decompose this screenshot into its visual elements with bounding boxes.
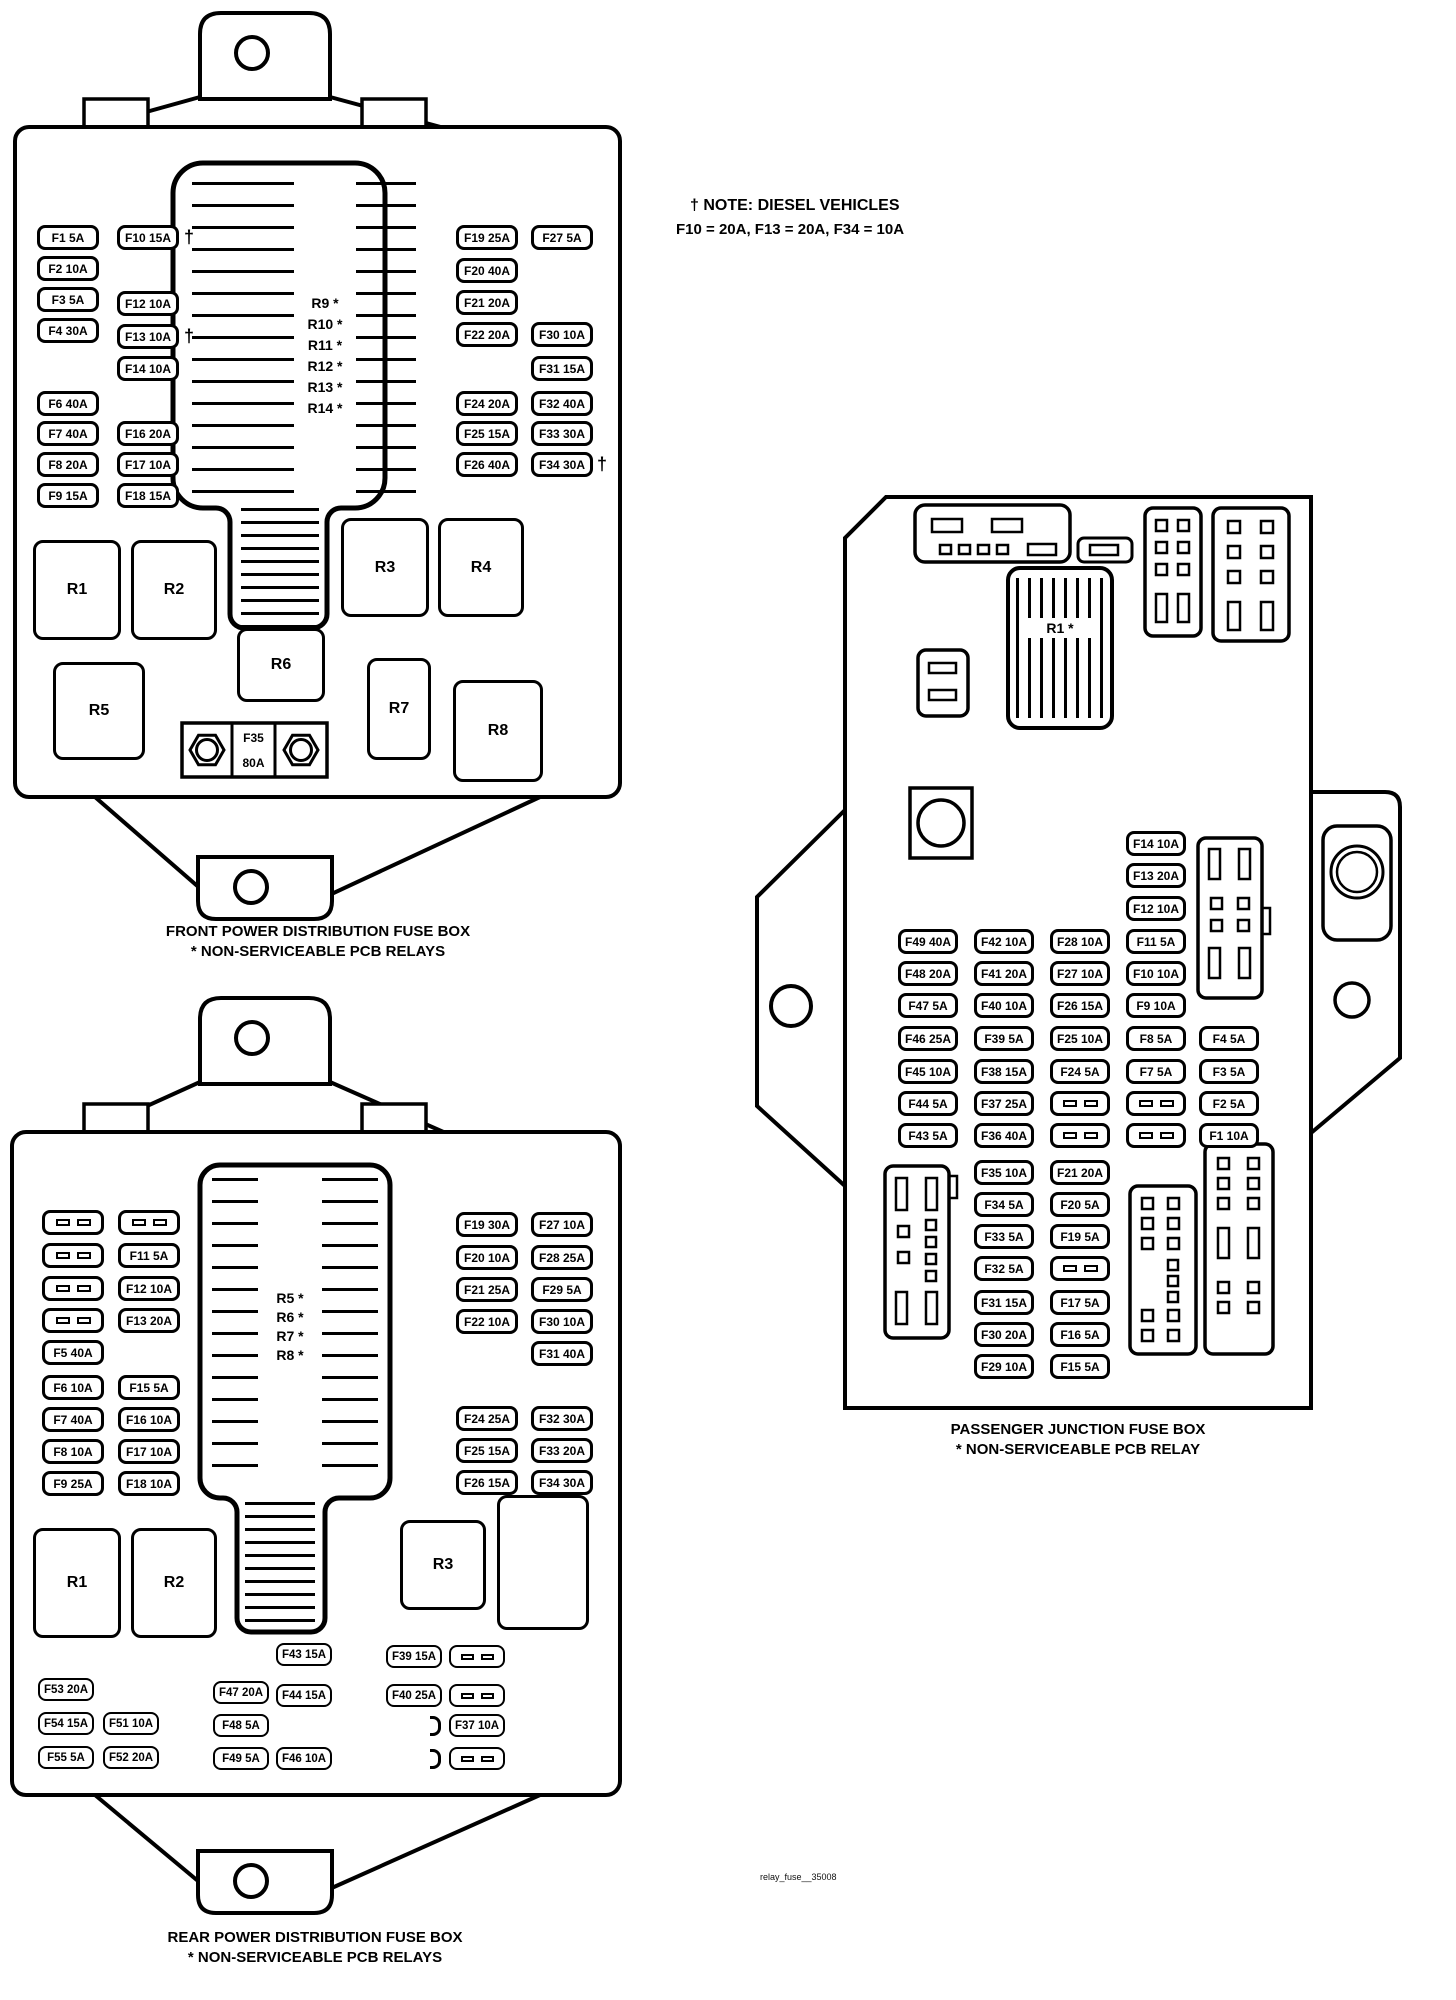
fuse-rear-f7: F7 40A <box>42 1407 104 1432</box>
relay-front-r4: R4 <box>438 518 524 617</box>
pcb-relay-label-r1: R1 * <box>1022 618 1098 638</box>
fuse-front-f31: F31 15A <box>531 356 593 381</box>
fuse-pass-f28: F28 10A <box>1050 929 1110 954</box>
fuse-pass-f8: F8 5A <box>1126 1026 1186 1051</box>
fuse-pass-f34: F34 5A <box>974 1192 1034 1217</box>
fuse-pass-f15: F15 5A <box>1050 1354 1110 1379</box>
pcb-ladder-lines <box>322 1178 378 1480</box>
fuse-pass-f26: F26 15A <box>1050 993 1110 1018</box>
fuse-rear-f20: F20 10A <box>456 1245 518 1270</box>
rear-caption-line1: REAR POWER DISTRIBUTION FUSE BOX <box>55 1928 575 1948</box>
passenger-caption-line1: PASSENGER JUNCTION FUSE BOX <box>818 1420 1338 1440</box>
fuse-rear-f8: F8 10A <box>42 1439 104 1464</box>
relay-front-r2: R2 <box>131 540 217 640</box>
relay-front-r7: R7 <box>367 658 431 760</box>
fuse-pass-f3: F3 5A <box>1199 1059 1259 1084</box>
fuse-front-f30: F30 10A <box>531 322 593 347</box>
drawing-reference-code: relay_fuse__35008 <box>760 1872 837 1882</box>
fuse-front-f35: F35 80A <box>233 726 274 776</box>
pcb-relay-label-r11: R11 * <box>296 335 354 355</box>
passenger-right-bracket <box>1311 792 1400 1133</box>
fuse-pass-f43: F43 5A <box>898 1123 958 1148</box>
fuse-front-f32: F32 40A <box>531 391 593 416</box>
relay-rear-r1: R1 <box>33 1528 121 1638</box>
relay-front-r3: R3 <box>341 518 429 617</box>
fuse-rear-f6: F6 10A <box>42 1375 104 1400</box>
connector-icon <box>1126 1123 1186 1148</box>
fuse-pass-f12: F12 10A <box>1126 896 1186 921</box>
pcb-ladder-lines <box>241 508 319 626</box>
fuse-rear-f28: F28 25A <box>531 1245 593 1270</box>
rear-caption-line2: * NON-SERVICEABLE PCB RELAYS <box>55 1948 575 1968</box>
pcb-relay-label-r13: R13 * <box>296 377 354 397</box>
fuse-front-f20: F20 40A <box>456 258 518 283</box>
fuse-front-f8: F8 20A <box>37 452 99 477</box>
fuse-pass-f1: F1 10A <box>1199 1123 1259 1148</box>
fuse-front-f3: F3 5A <box>37 287 99 312</box>
fuse-pass-f39: F39 5A <box>974 1026 1034 1051</box>
pcb-ladder-lines <box>245 1502 315 1628</box>
fuse-rear-f12: F12 10A <box>118 1276 180 1301</box>
fuse-rear-f21: F21 25A <box>456 1277 518 1302</box>
fuse-pass-f10: F10 10A <box>1126 961 1186 986</box>
connector-icon <box>449 1684 505 1707</box>
fuse-pass-f44: F44 5A <box>898 1091 958 1116</box>
fuse-rear-f18: F18 10A <box>118 1471 180 1496</box>
fuse-front-f18: F18 15A <box>117 483 179 508</box>
fuse-rear-f34: F34 30A <box>531 1470 593 1495</box>
fuse-front-f34: F34 30A <box>531 452 593 477</box>
fuse-pass-f11: F11 5A <box>1126 929 1186 954</box>
fuse-pass-f13: F13 20A <box>1126 863 1186 888</box>
fuse-rear-f17: F17 10A <box>118 1439 180 1464</box>
fuse-front-f35-id: F35 <box>233 726 274 751</box>
connector-icon <box>1126 1091 1186 1116</box>
pcb-relay-label-r6: R6 * <box>262 1307 318 1327</box>
connector-icon <box>449 1747 505 1770</box>
fuse-rear-f33: F33 20A <box>531 1438 593 1463</box>
fuse-pass-f20: F20 5A <box>1050 1192 1110 1217</box>
connector-icon <box>118 1210 180 1235</box>
fuse-rear-f40: F40 25A <box>386 1684 442 1707</box>
fuse-rear-f44: F44 15A <box>276 1684 332 1707</box>
relay-front-r6: R6 <box>237 628 325 702</box>
fuse-rear-f9: F9 25A <box>42 1471 104 1496</box>
fuse-front-f35-amp: 80A <box>233 751 274 776</box>
fuse-rear-f43: F43 15A <box>276 1643 332 1666</box>
relay-front-r1: R1 <box>33 540 121 640</box>
passenger-box-caption: PASSENGER JUNCTION FUSE BOX * NON-SERVIC… <box>818 1420 1338 1460</box>
fuse-rear-f30: F30 10A <box>531 1309 593 1334</box>
fuse-front-f17: F17 10A <box>117 452 179 477</box>
pcb-ladder-lines <box>212 1178 258 1480</box>
fuse-rear-f55: F55 5A <box>38 1746 94 1769</box>
fuse-rear-f15: F15 5A <box>118 1375 180 1400</box>
relay-rear-r3: R3 <box>400 1520 486 1610</box>
connector-icon <box>42 1276 104 1301</box>
pcb-relay-label-r9: R9 * <box>296 293 354 313</box>
fuse-front-f12: F12 10A <box>117 291 179 316</box>
fuse-rear-f49: F49 5A <box>213 1747 269 1770</box>
fuse-pass-f37: F37 25A <box>974 1091 1034 1116</box>
fuse-front-f24: F24 20A <box>456 391 518 416</box>
fuse-front-f16: F16 20A <box>117 421 179 446</box>
connector-icon <box>449 1645 505 1668</box>
rear-box-caption: REAR POWER DISTRIBUTION FUSE BOX * NON-S… <box>55 1928 575 1968</box>
pcb-relay-label-r7: R7 * <box>262 1326 318 1346</box>
dagger-front-f34: † <box>597 454 607 475</box>
fuse-pass-f27: F27 10A <box>1050 961 1110 986</box>
front-box-caption: FRONT POWER DISTRIBUTION FUSE BOX * NON-… <box>58 922 578 962</box>
fuse-front-f10: F10 15A <box>117 225 179 250</box>
fuse-pass-f16: F16 5A <box>1050 1322 1110 1347</box>
fuse-pass-f49: F49 40A <box>898 929 958 954</box>
diesel-note-title: † NOTE: DIESEL VEHICLES <box>690 197 900 215</box>
fuse-front-f27: F27 5A <box>531 225 593 250</box>
connector-icon <box>42 1308 104 1333</box>
fuse-rear-f51: F51 10A <box>103 1712 159 1735</box>
fuse-pass-f24: F24 5A <box>1050 1059 1110 1084</box>
fuse-rear-f5: F5 40A <box>42 1340 104 1365</box>
connector-icon <box>42 1210 104 1235</box>
fuse-front-f14: F14 10A <box>117 356 179 381</box>
fuse-box-diagram-page: † NOTE: DIESEL VEHICLES F10 = 20A, F13 =… <box>0 0 1456 2000</box>
fuse-rear-f19: F19 30A <box>456 1212 518 1237</box>
fuse-pass-f14: F14 10A <box>1126 831 1186 856</box>
fuse-pass-f33: F33 5A <box>974 1224 1034 1249</box>
fuse-front-f2: F2 10A <box>37 256 99 281</box>
fuse-rear-f26: F26 15A <box>456 1470 518 1495</box>
fuse-rear-f47: F47 20A <box>213 1681 269 1704</box>
pcb-relay-label-r12: R12 * <box>296 356 354 376</box>
fuse-front-f21: F21 20A <box>456 290 518 315</box>
relay-front-r8: R8 <box>453 680 543 782</box>
fuse-front-f19: F19 25A <box>456 225 518 250</box>
fuse-rear-f54: F54 15A <box>38 1712 94 1735</box>
front-box-top-bracket <box>84 13 448 129</box>
fuse-pass-f42: F42 10A <box>974 929 1034 954</box>
fuse-front-f22: F22 20A <box>456 322 518 347</box>
fuse-rear-f52: F52 20A <box>103 1746 159 1769</box>
fuse-rear-f32: F32 30A <box>531 1406 593 1431</box>
fuse-front-f13: F13 10A <box>117 324 179 349</box>
front-caption-line2: * NON-SERVICEABLE PCB RELAYS <box>58 942 578 962</box>
rear-box-top-bracket <box>84 998 448 1134</box>
pcb-ladder-lines <box>356 182 416 494</box>
fuse-pass-f9: F9 10A <box>1126 993 1186 1018</box>
fuse-rear-f37: F37 10A <box>449 1714 505 1737</box>
fuse-rear-f25: F25 15A <box>456 1438 518 1463</box>
diesel-note-values: F10 = 20A, F13 = 20A, F34 = 10A <box>676 221 904 238</box>
relay-rear-r2: R2 <box>131 1528 217 1638</box>
fuse-front-f9: F9 15A <box>37 483 99 508</box>
pcb-relay-label-r8: R8 * <box>262 1345 318 1365</box>
fuse-rear-f29: F29 5A <box>531 1277 593 1302</box>
pcb-ladder-lines <box>1016 578 1104 718</box>
fuse-rear-f11: F11 5A <box>118 1243 180 1268</box>
fuse-rear-f46: F46 10A <box>276 1747 332 1770</box>
relay-rear-blank <box>497 1495 589 1630</box>
fuse-pass-f45: F45 10A <box>898 1059 958 1084</box>
fuse-front-f33: F33 30A <box>531 421 593 446</box>
fuse-pass-f48: F48 20A <box>898 961 958 986</box>
relay-front-r5: R5 <box>53 662 145 760</box>
passenger-caption-line2: * NON-SERVICEABLE PCB RELAY <box>818 1440 1338 1460</box>
fuse-front-f1: F1 5A <box>37 225 99 250</box>
fuse-pass-f29: F29 10A <box>974 1354 1034 1379</box>
connector-icon <box>1050 1091 1110 1116</box>
fuse-pass-f7: F7 5A <box>1126 1059 1186 1084</box>
fuse-pass-f36: F36 40A <box>974 1123 1034 1148</box>
pcb-relay-label-r14: R14 * <box>296 398 354 418</box>
fuse-front-f6: F6 40A <box>37 391 99 416</box>
fuse-pass-f4: F4 5A <box>1199 1026 1259 1051</box>
connector-icon <box>1050 1256 1110 1281</box>
pcb-relay-label-r5: R5 * <box>262 1288 318 1308</box>
connector-icon <box>1050 1123 1110 1148</box>
fuse-rear-f22: F22 10A <box>456 1309 518 1334</box>
fuse-pass-f38: F38 15A <box>974 1059 1034 1084</box>
fuse-rear-f24: F24 25A <box>456 1406 518 1431</box>
fuse-front-f7: F7 40A <box>37 421 99 446</box>
fuse-pass-f35: F35 10A <box>974 1160 1034 1185</box>
fuse-pass-f30: F30 20A <box>974 1322 1034 1347</box>
fuse-rear-f53: F53 20A <box>38 1678 94 1701</box>
fuse-pass-f32: F32 5A <box>974 1256 1034 1281</box>
fuse-pass-f21: F21 20A <box>1050 1160 1110 1185</box>
fuse-rear-f48: F48 5A <box>213 1714 269 1737</box>
pcb-relay-label-r10: R10 * <box>296 314 354 334</box>
fuse-pass-f47: F47 5A <box>898 993 958 1018</box>
fuse-pass-f17: F17 5A <box>1050 1290 1110 1315</box>
fuse-rear-f39: F39 15A <box>386 1645 442 1668</box>
fuse-pass-f40: F40 10A <box>974 993 1034 1018</box>
passenger-left-bracket <box>757 810 845 1186</box>
fuse-pass-f2: F2 5A <box>1199 1091 1259 1116</box>
front-box-bottom-bracket <box>95 797 540 919</box>
fuse-rear-f13: F13 20A <box>118 1308 180 1333</box>
fuse-front-f4: F4 30A <box>37 318 99 343</box>
fuse-rear-f27: F27 10A <box>531 1212 593 1237</box>
fuse-front-f26: F26 40A <box>456 452 518 477</box>
fuse-pass-f25: F25 10A <box>1050 1026 1110 1051</box>
fuse-pass-f31: F31 15A <box>974 1290 1034 1315</box>
connector-icon <box>42 1243 104 1268</box>
pcb-ladder-lines <box>192 182 294 494</box>
fuse-front-f25: F25 15A <box>456 421 518 446</box>
rear-box-bottom-bracket <box>95 1795 540 1913</box>
fuse-pass-f46: F46 25A <box>898 1026 958 1051</box>
fuse-pass-f41: F41 20A <box>974 961 1034 986</box>
fuse-rear-f16: F16 10A <box>118 1407 180 1432</box>
front-caption-line1: FRONT POWER DISTRIBUTION FUSE BOX <box>58 922 578 942</box>
fuse-pass-f19: F19 5A <box>1050 1224 1110 1249</box>
fuse-rear-f31: F31 40A <box>531 1341 593 1366</box>
